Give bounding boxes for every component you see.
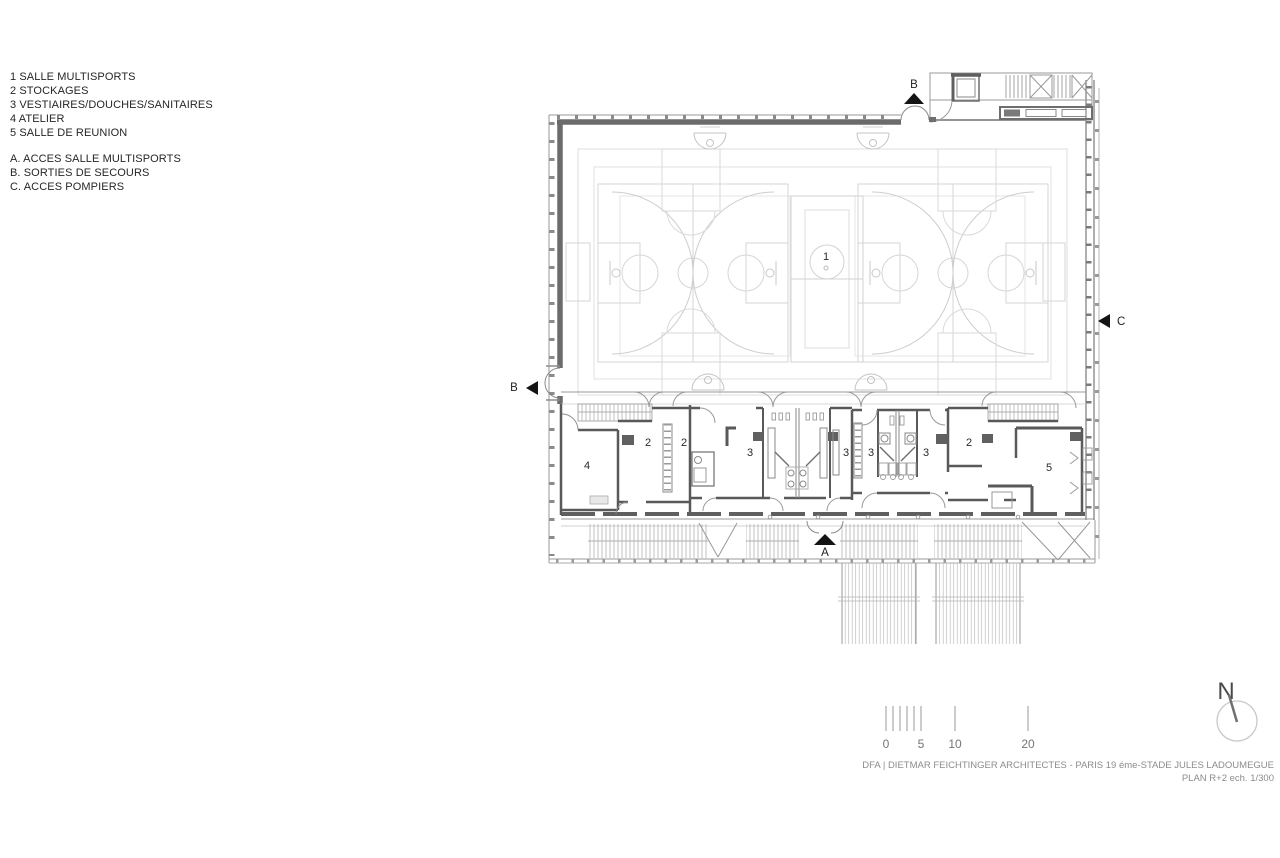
project-title: DFA | DIETMAR FEICHTINGER ARCHITECTES - … (774, 760, 1274, 773)
service-strip (561, 404, 1095, 519)
legend-access-item: B. SORTIES DE SECOURS (10, 166, 213, 180)
room-label-3d: 3 (923, 447, 929, 459)
room-label-2c: 2 (966, 437, 972, 449)
marker-b-top-triangle-icon (904, 93, 924, 104)
room-label-3a: 3 (747, 447, 753, 459)
building-envelope (549, 80, 1099, 563)
exit-door-b-top (901, 106, 929, 120)
room-atelier (562, 414, 608, 504)
vestiaire-core-a (700, 408, 840, 511)
scale-label-10: 10 (948, 737, 962, 751)
marker-b-left-triangle-icon (526, 381, 538, 395)
scale-label-0: 0 (883, 737, 890, 751)
entrance-a-door (807, 521, 843, 533)
room-label-5: 5 (1046, 462, 1052, 474)
marker-b-left: B (510, 381, 538, 395)
marker-b-top-label: B (910, 79, 918, 91)
north-arrow: N (1217, 678, 1257, 741)
stair-strip-left (578, 404, 652, 421)
multisports-hall-walls (557, 120, 1086, 404)
scale-label-20: 20 (1021, 737, 1035, 751)
marker-a-bottom-triangle-icon (814, 534, 836, 545)
scale-label-5: 5 (918, 737, 925, 751)
legend-room-item: 1 SALLE MULTISPORTS (10, 70, 213, 84)
marker-a-bottom-label: A (821, 547, 829, 559)
scale-bar: 0 5 10 20 (883, 706, 1035, 751)
legend-room-item: 2 STOCKAGES (10, 84, 213, 98)
marker-c-right: C (1098, 314, 1125, 328)
room-label-3b: 3 (843, 447, 849, 459)
legend-room-item: 3 VESTIAIRES/DOUCHES/SANITAIRES (10, 98, 213, 112)
legend-access-item: C. ACCES POMPIERS (10, 180, 213, 194)
room-stockage-left (616, 424, 714, 514)
ramp-bands (838, 563, 1024, 644)
room-label-2a: 2 (645, 437, 651, 449)
legend: 1 SALLE MULTISPORTS 2 STOCKAGES 3 VESTIA… (10, 70, 213, 194)
room-label-4: 4 (584, 460, 590, 472)
marker-c-right-label: C (1117, 316, 1125, 328)
legend-room-item: 5 SALLE DE REUNION (10, 126, 213, 140)
room-label-2b: 2 (681, 437, 687, 449)
court-markings (566, 149, 1067, 395)
legend-access-item: A. ACCES SALLE MULTISPORTS (10, 152, 213, 166)
room-label-1: 1 (823, 251, 829, 263)
room-label-3c: 3 (868, 447, 874, 459)
marker-a-bottom: A (814, 534, 836, 559)
marker-b-left-label: B (510, 382, 518, 394)
title-block: DFA | DIETMAR FEICHTINGER ARCHITECTES - … (774, 760, 1274, 785)
marker-b-top: B (904, 79, 924, 104)
marker-c-right-triangle-icon (1098, 314, 1110, 328)
room-stockage-right-and-reunion (936, 432, 1092, 508)
plan-title: PLAN R+2 ech. 1/300 (774, 773, 1274, 786)
architectural-drawing-page: 1 SALLE MULTISPORTS 2 STOCKAGES 3 VESTIA… (0, 0, 1280, 853)
stair-lift-block (929, 73, 1092, 122)
legend-room-item: 4 ATELIER (10, 112, 213, 126)
stair-strip-right (988, 404, 1058, 421)
